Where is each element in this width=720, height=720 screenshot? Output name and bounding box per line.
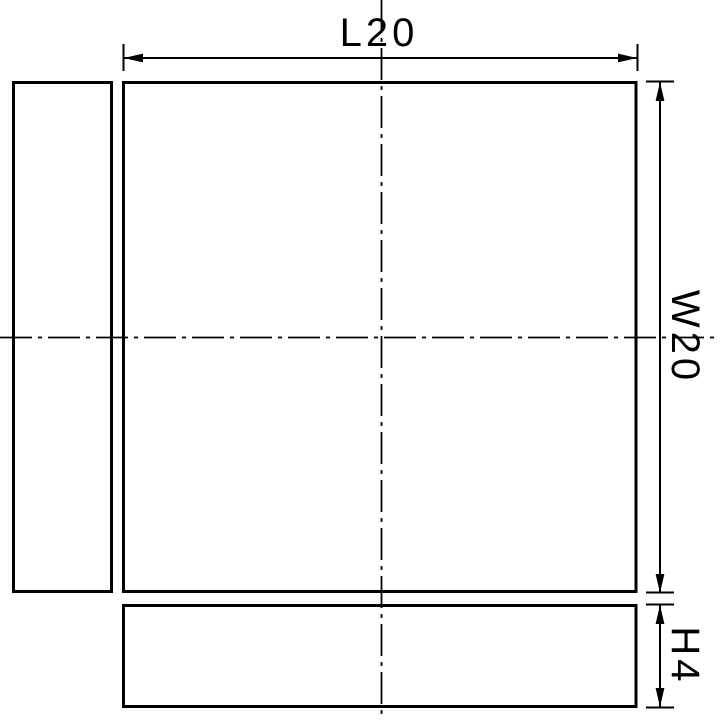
width-dimension-label: W20 bbox=[663, 290, 707, 384]
drawing-canvas: L20 W20 H4 bbox=[0, 0, 720, 720]
centerlines bbox=[0, 0, 720, 720]
length-dimension-label: L20 bbox=[340, 11, 419, 55]
height-arrow-down-icon bbox=[656, 688, 665, 707]
width-arrow-up-icon bbox=[656, 82, 665, 101]
front-view-outline bbox=[124, 606, 637, 707]
height-arrow-up-icon bbox=[656, 605, 665, 624]
height-dimension-label: H4 bbox=[663, 626, 707, 685]
length-arrow-left-icon bbox=[124, 54, 143, 63]
view-outlines bbox=[14, 83, 637, 707]
width-arrow-down-icon bbox=[656, 574, 665, 593]
dimension-lines bbox=[124, 44, 675, 708]
dimension-arrows bbox=[124, 54, 664, 707]
technical-drawing: L20 W20 H4 bbox=[0, 0, 720, 720]
dimension-labels: L20 W20 H4 bbox=[340, 11, 707, 686]
length-arrow-right-icon bbox=[618, 54, 637, 63]
